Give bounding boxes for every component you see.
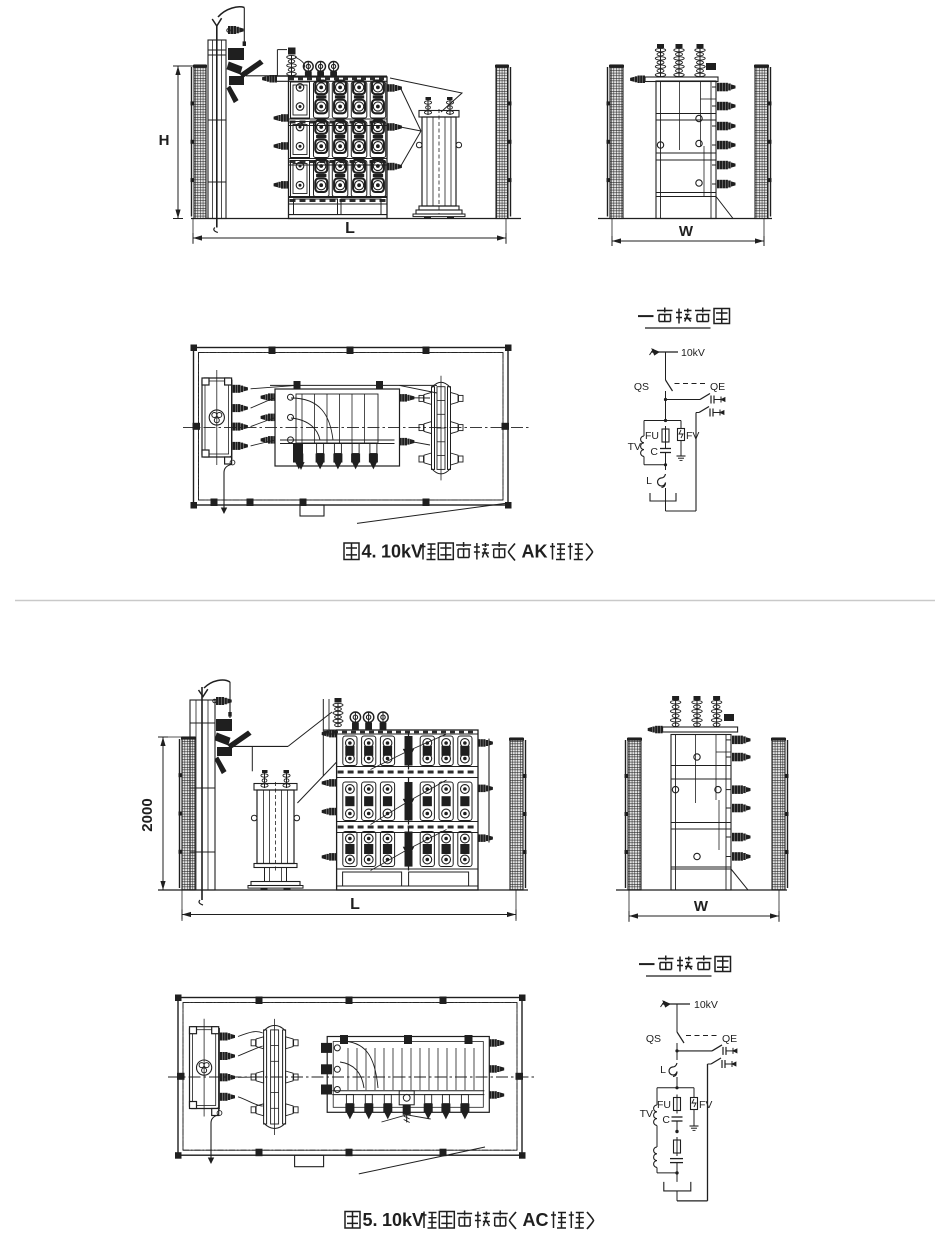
svg-text:10kV: 10kV xyxy=(681,347,705,359)
svg-text:L: L xyxy=(345,220,355,237)
svg-text:C: C xyxy=(662,1114,670,1126)
svg-text:QE: QE xyxy=(710,381,725,393)
svg-text:L: L xyxy=(646,475,652,487)
svg-text:2000: 2000 xyxy=(139,798,156,831)
svg-text:AC: AC xyxy=(523,1210,549,1230)
svg-text:AK: AK xyxy=(522,542,548,562)
svg-text:10kV: 10kV xyxy=(381,542,423,562)
svg-text:W: W xyxy=(679,223,694,240)
svg-text:H: H xyxy=(159,132,170,149)
svg-text:TV: TV xyxy=(640,1108,653,1120)
svg-text:FV: FV xyxy=(686,430,699,442)
svg-text:L: L xyxy=(660,1064,666,1076)
svg-text:FU: FU xyxy=(645,430,659,442)
svg-text:QE: QE xyxy=(722,1033,737,1045)
svg-text:TV: TV xyxy=(628,441,641,453)
svg-text:10kV: 10kV xyxy=(382,1210,424,1230)
svg-text:QS: QS xyxy=(646,1033,661,1045)
svg-text:5.: 5. xyxy=(363,1210,378,1230)
svg-text:W: W xyxy=(694,898,709,915)
svg-text:C: C xyxy=(650,446,658,458)
svg-text:4.: 4. xyxy=(362,542,377,562)
svg-text:FV: FV xyxy=(699,1099,712,1111)
svg-text:FU: FU xyxy=(657,1099,671,1111)
svg-text:QS: QS xyxy=(634,381,649,393)
svg-text:10kV: 10kV xyxy=(694,999,718,1011)
svg-text:L: L xyxy=(350,896,360,913)
